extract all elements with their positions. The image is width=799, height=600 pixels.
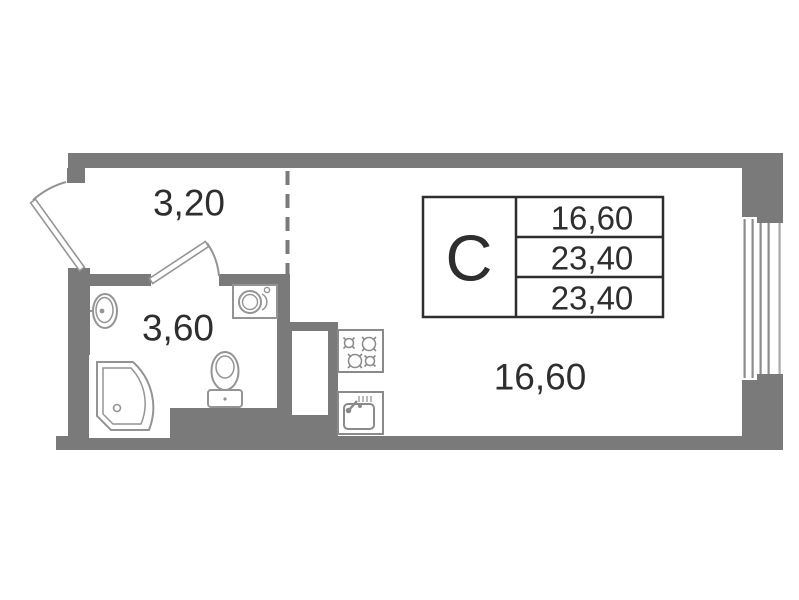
floor-plan-canvas: С 16,60 23,40 23,40 3,20 3,60 16,60	[0, 0, 799, 600]
entrance-door-swing-arc	[33, 182, 66, 200]
entrance-door	[31, 182, 85, 271]
entrance-door-jamb	[67, 168, 85, 183]
window-sill-step-top	[757, 217, 783, 223]
window-pane-line	[744, 219, 746, 378]
legend-value-total-area: 23,40	[551, 240, 634, 277]
entrance-door-leaf	[31, 199, 85, 271]
ventilation-shaft	[292, 331, 328, 415]
toilet-tank-button	[223, 397, 226, 400]
window-pane-line	[752, 219, 754, 378]
legend-value-reduced-area: 23,40	[551, 280, 634, 317]
washing-machine-symbol	[233, 285, 277, 318]
shower-cabin-symbol	[89, 355, 170, 438]
window-sill-step-bottom	[757, 374, 783, 380]
toilet-bowl-outer	[212, 352, 239, 390]
sink-faucet-dot	[358, 404, 362, 408]
wash-basin-symbol	[90, 294, 117, 328]
basin-tap-dot	[100, 309, 105, 314]
bathroom-door-swing-arc	[207, 243, 219, 276]
floor-plan: С 16,60 23,40 23,40 3,20 3,60 16,60	[0, 0, 799, 600]
living-room-area-label: 16,60	[494, 357, 587, 398]
bathroom-area-label: 3,60	[142, 308, 214, 349]
kitchen-sink-symbol	[338, 392, 383, 434]
hallway-area-label: 3,20	[153, 183, 225, 224]
unit-letter: С	[446, 222, 493, 295]
bathroom-door	[149, 242, 219, 284]
toilet-symbol	[208, 352, 242, 407]
top-wall	[68, 153, 783, 168]
legend-value-living-area: 16,60	[551, 200, 634, 237]
window-opening	[742, 217, 783, 380]
stove-symbol	[338, 330, 383, 372]
window-pane-line	[768, 219, 770, 378]
window-pane-line	[760, 219, 762, 378]
shower-drain	[114, 405, 121, 412]
kitchen-fixtures	[338, 330, 383, 434]
sink-faucet-base	[346, 408, 352, 414]
bathroom-top-wall-left	[85, 274, 151, 286]
bottom-wall	[56, 436, 783, 450]
bathroom-door-leaf	[149, 242, 208, 284]
left-wall	[68, 268, 90, 450]
window-outer-face-line	[779, 219, 781, 378]
